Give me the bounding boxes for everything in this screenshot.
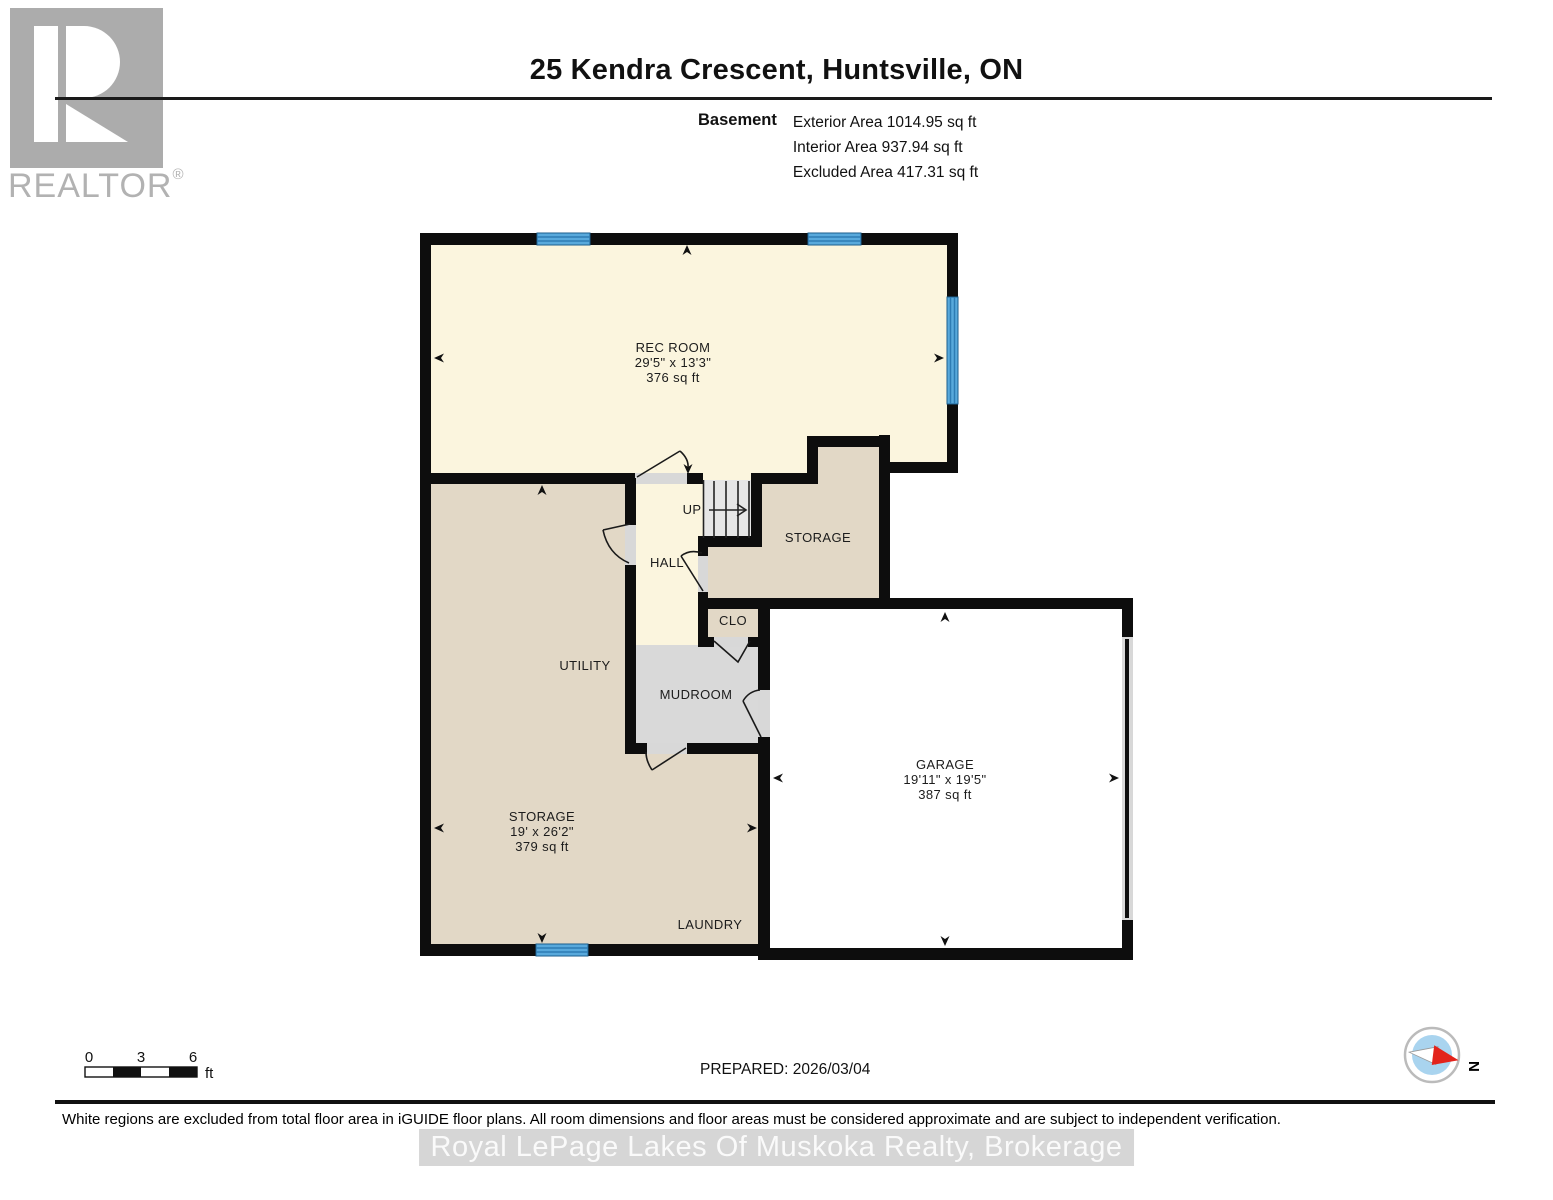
laundry-label: LAUNDRY [678, 917, 743, 932]
hall-label: HALL [650, 555, 684, 570]
window-icon [537, 233, 590, 245]
footer-divider [55, 1100, 1495, 1104]
window-icon [536, 944, 588, 956]
scale-tick-0: 0 [85, 1049, 93, 1066]
storage-main-area: 379 sq ft [515, 839, 568, 854]
garage-area: 387 sq ft [918, 787, 971, 802]
prepared-date: PREPARED: 2026/03/04 [700, 1061, 870, 1079]
rec-room-area: 376 sq ft [646, 370, 699, 385]
garage-label: GARAGE [916, 757, 974, 772]
scale-tick-6: 6 [189, 1049, 197, 1066]
rec-room-dims: 29'5" x 13'3" [635, 355, 712, 370]
scale-tick-3: 3 [137, 1049, 145, 1066]
storage-main-dims: 19' x 26'2" [510, 824, 574, 839]
storage-main-label: STORAGE [509, 809, 575, 824]
mudroom-label: MUDROOM [660, 687, 733, 702]
compass-icon: N [1405, 1028, 1482, 1082]
scale-unit: ft [205, 1065, 214, 1082]
disclaimer-text: White regions are excluded from total fl… [62, 1111, 1281, 1128]
scale-bar: 0 3 6 ft [85, 1049, 214, 1082]
compass-north-label: N [1465, 1061, 1482, 1072]
floor-plan: REC ROOM 29'5" x 13'3" 376 sq ft UTILITY… [0, 0, 1553, 1200]
rec-room-label: REC ROOM [636, 340, 711, 355]
utility-label: UTILITY [559, 658, 610, 673]
up-label: UP [683, 502, 702, 517]
floor-plan-page: REALTOR® 25 Kendra Crescent, Huntsville,… [0, 0, 1553, 1200]
garage-dims: 19'11" x 19'5" [903, 772, 986, 787]
window-icon [808, 233, 861, 245]
clo-label: CLO [719, 613, 747, 628]
window-icon [947, 297, 958, 404]
brokerage-watermark: Royal LePage Lakes Of Muskoka Realty, Br… [419, 1129, 1135, 1166]
storage-small-label: STORAGE [785, 530, 851, 545]
